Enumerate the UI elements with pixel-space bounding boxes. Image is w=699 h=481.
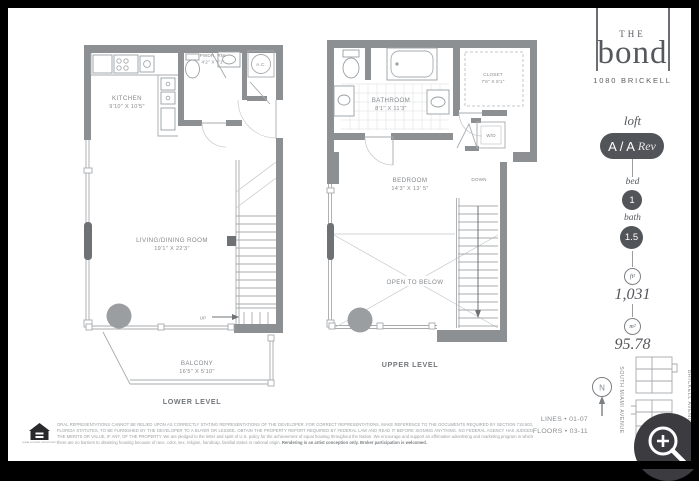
living-dims: 19'1" X 22'3" [154, 246, 190, 252]
connector-line-2 [632, 251, 633, 267]
bath-label: bath [586, 213, 679, 223]
pwdr-label: PWDR. RM. [200, 53, 227, 58]
balcony-dims: 16'5" X 5'10" [179, 369, 215, 375]
connector-line-3 [632, 304, 633, 317]
bed-label: bed [586, 177, 679, 187]
bathroom-label: BATHROOM [372, 97, 411, 104]
ac-label: A.C. [256, 62, 266, 67]
lower-round-column [107, 304, 132, 329]
bathroom-dims: 8'1" X 11'3" [375, 106, 407, 112]
unit-badge-main: A / A [608, 139, 635, 154]
wd-label: W/D [486, 133, 496, 138]
bathroom-fixtures [334, 48, 449, 130]
magnifier-icon [634, 413, 699, 481]
lower-stairs [236, 160, 276, 324]
up-arrow [212, 314, 239, 320]
down-label: DOWN [471, 177, 486, 182]
bath-count-badge: 1.5 [620, 226, 643, 249]
open-to-below-label: OPEN TO BELOW [387, 279, 444, 286]
connector-line-1 [632, 159, 633, 177]
closet-dims: 7'6" X 8'1" [481, 79, 504, 84]
upper-walls [327, 40, 537, 342]
lower-level-title: LOWER LEVEL [163, 397, 222, 406]
lower-slider-panel [84, 222, 92, 260]
floorplan-sheet: { "brand": { "the": "THE", "name": "bond… [0, 0, 699, 469]
kitchen-dims: 9'10" X 10'5" [109, 104, 145, 110]
closet-label: CLOSET [483, 72, 503, 77]
unit-badge: A / A Rev [600, 133, 664, 159]
disclaimer-bold-text: Rendering is an artist conception only. … [282, 440, 427, 445]
upper-level-title: UPPER LEVEL [382, 360, 439, 369]
washer-dryer [457, 122, 505, 148]
lower-level-plan: KITCHEN 9'10" X 10'5" PWDR. RM. 4'2" X 7… [58, 20, 310, 415]
lower-column-square [227, 236, 236, 246]
upper-level-plan: BATHROOM 8'1" X 11'3" CLOSET 7'6" X 8'1"… [315, 20, 550, 415]
pwdr-dims: 4'2" X 7'1" [201, 60, 224, 65]
sqm-unit-circle: m² [624, 318, 641, 335]
compass: N [593, 378, 612, 417]
balcony-outline [103, 332, 274, 386]
up-label: UP [200, 316, 207, 321]
living-label: LIVING/DINING ROOM [136, 237, 208, 244]
equal-housing-label: EQUAL HOUSING OPPORTUNITY [22, 441, 57, 444]
upper-stairs [457, 198, 499, 328]
bed-count-badge: 1 [622, 190, 642, 210]
upper-bottom-window [329, 323, 437, 329]
bedroom-dims: 14'3" X 13' 5" [391, 186, 428, 192]
street-left-label: SOUTH MIAMI AVENUE [618, 366, 624, 433]
zoom-button[interactable] [634, 413, 699, 481]
upper-round-column [348, 308, 373, 333]
bedroom-label: BEDROOM [393, 177, 428, 184]
compass-n: N [599, 384, 605, 393]
logo-address: 1080 BRICKELL [586, 76, 679, 85]
balcony-label: BALCONY [181, 360, 213, 367]
sqft-unit-circle: ft² [624, 268, 641, 285]
legal-disclaimer: ORAL REPRESENTATIONS CANNOT BE RELIED UP… [57, 422, 533, 446]
kitchen-label: KITCHEN [112, 95, 142, 102]
logo-bond: bond [586, 38, 679, 68]
sqft-value: 1,031 [586, 286, 679, 304]
lower-bottom-window [86, 324, 234, 330]
unit-badge-rev: Rev [638, 139, 656, 154]
equal-housing-logo: EQUAL HOUSING OPPORTUNITY [29, 423, 50, 444]
lower-walls [84, 45, 283, 333]
loft-label: loft [586, 113, 679, 129]
upper-slider-panel [327, 223, 334, 260]
north-arrow [599, 396, 605, 404]
